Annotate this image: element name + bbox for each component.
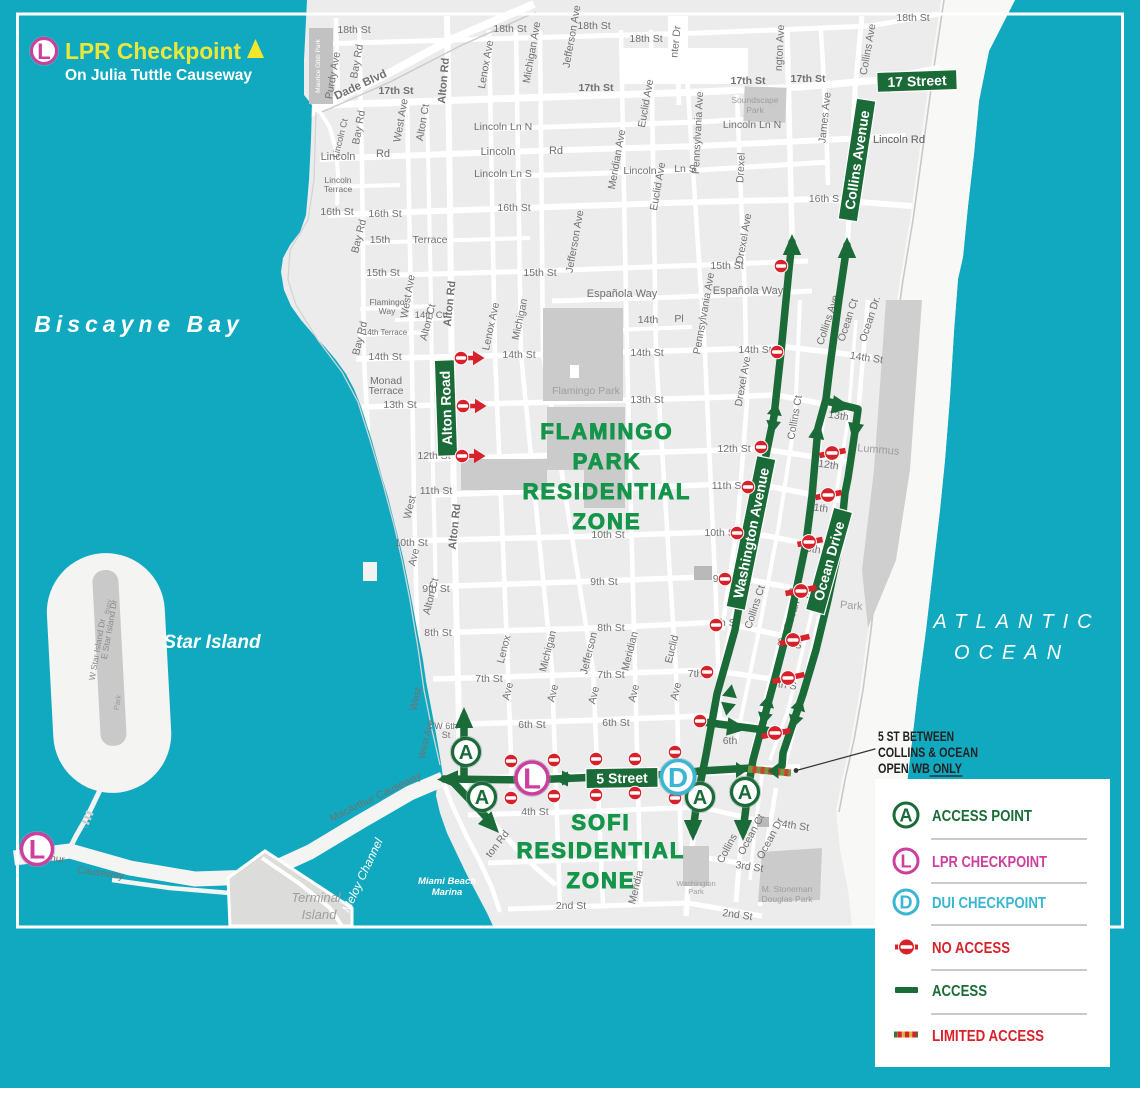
svg-text:NO ACCESS: NO ACCESS: [932, 940, 1010, 957]
svg-text:Lincoln Rd: Lincoln Rd: [873, 134, 925, 146]
svg-text:RESIDENTIAL: RESIDENTIAL: [517, 838, 686, 863]
svg-text:Lincoln Ln N: Lincoln Ln N: [474, 121, 532, 133]
svg-text:13th St: 13th St: [630, 394, 663, 406]
svg-text:9th St: 9th St: [590, 576, 618, 588]
svg-text:18th St: 18th St: [629, 33, 662, 45]
svg-text:13th St: 13th St: [383, 399, 416, 411]
svg-text:L: L: [901, 851, 912, 871]
svg-text:14th St: 14th St: [738, 344, 771, 356]
svg-text:Terrace: Terrace: [412, 234, 447, 246]
svg-text:Pl: Pl: [674, 313, 683, 325]
svg-text:5 ST BETWEEN: 5 ST BETWEEN: [878, 729, 954, 744]
svg-text:14th St: 14th St: [502, 349, 535, 361]
svg-text:Island: Island: [302, 907, 337, 922]
svg-text:6th: 6th: [723, 735, 738, 747]
svg-text:16th St: 16th St: [320, 206, 353, 218]
svg-text:LPR Checkpoint: LPR Checkpoint: [65, 38, 241, 64]
svg-text:A: A: [475, 787, 489, 809]
svg-text:Lincoln: Lincoln: [321, 151, 356, 163]
svg-text:14th St: 14th St: [368, 351, 401, 363]
svg-text:11th St: 11th St: [420, 485, 453, 497]
svg-text:ZONE: ZONE: [566, 868, 635, 893]
svg-text:17th St: 17th St: [790, 73, 826, 85]
svg-text:Terrace: Terrace: [324, 184, 353, 194]
svg-text:L: L: [37, 39, 50, 64]
svg-text:St: St: [442, 730, 451, 740]
svg-text:Ln S: Ln S: [674, 163, 696, 175]
svg-text:15th: 15th: [370, 234, 391, 246]
svg-text:Marina: Marina: [432, 887, 463, 898]
svg-text:7th St: 7th St: [475, 673, 503, 685]
svg-text:17th St: 17th St: [578, 82, 614, 94]
svg-text:14th Terrace: 14th Terrace: [363, 328, 408, 337]
svg-text:Española Way: Española Way: [587, 288, 658, 300]
svg-text:Española Way: Española Way: [713, 285, 784, 297]
svg-text:18th St: 18th St: [493, 23, 526, 35]
svg-text:Terrace: Terrace: [368, 385, 403, 397]
svg-text:DUI CHECKPOINT: DUI CHECKPOINT: [932, 895, 1046, 912]
svg-text:Rd: Rd: [549, 145, 563, 157]
svg-text:8th St: 8th St: [424, 627, 452, 639]
svg-text:L: L: [29, 835, 46, 865]
svg-text:A: A: [459, 742, 473, 764]
svg-text:FLAMINGO: FLAMINGO: [540, 419, 673, 444]
svg-text:Lincoln: Lincoln: [623, 165, 656, 177]
svg-text:15th St: 15th St: [710, 260, 743, 272]
svg-text:Park: Park: [839, 599, 863, 613]
svg-text:7th St: 7th St: [597, 669, 625, 681]
svg-text:D: D: [668, 762, 688, 793]
svg-text:17th St: 17th St: [730, 75, 766, 87]
svg-text:2nd St: 2nd St: [556, 900, 586, 912]
svg-text:ACCESS: ACCESS: [932, 983, 987, 1000]
svg-text:18th St: 18th St: [896, 12, 929, 24]
svg-text:A: A: [738, 782, 752, 804]
svg-text:Lincoln Ln S: Lincoln Ln S: [474, 168, 532, 180]
svg-text:Terminal: Terminal: [291, 890, 341, 905]
svg-text:14th Ct: 14th Ct: [415, 310, 446, 321]
svg-text:Miami Beach: Miami Beach: [418, 876, 476, 887]
svg-text:On Julia Tuttle Causeway: On Julia Tuttle Causeway: [65, 67, 252, 84]
svg-text:18th St: 18th St: [577, 20, 610, 32]
svg-text:4th St: 4th St: [521, 806, 549, 818]
svg-text:M. Stoneman: M. Stoneman: [762, 884, 813, 894]
svg-text:ACCESS POINT: ACCESS POINT: [932, 808, 1032, 825]
svg-text:14th: 14th: [638, 314, 659, 326]
svg-text:16th St: 16th St: [497, 202, 530, 214]
svg-text:18th St: 18th St: [337, 24, 370, 36]
svg-text:ZONE: ZONE: [572, 509, 641, 534]
svg-text:OCEAN: OCEAN: [954, 642, 1070, 664]
svg-text:RESIDENTIAL: RESIDENTIAL: [523, 479, 692, 504]
svg-text:Park: Park: [688, 887, 704, 896]
svg-text:9th St: 9th St: [422, 583, 450, 595]
svg-text:L: L: [523, 763, 541, 795]
svg-text:16th S: 16th S: [809, 193, 839, 205]
svg-text:A: A: [900, 805, 913, 825]
svg-text:LPR CHECKPOINT: LPR CHECKPOINT: [932, 854, 1047, 871]
svg-text:COLLINS & OCEAN: COLLINS & OCEAN: [878, 745, 978, 760]
svg-text:PARK: PARK: [573, 449, 642, 474]
svg-text:6th St: 6th St: [518, 719, 546, 731]
svg-text:A: A: [693, 787, 707, 809]
svg-text:LIMITED ACCESS: LIMITED ACCESS: [932, 1028, 1044, 1045]
svg-text:Way: Way: [379, 306, 396, 316]
svg-text:Star Island: Star Island: [163, 632, 261, 653]
svg-text:ATLANTIC: ATLANTIC: [932, 611, 1100, 633]
svg-text:SOFI: SOFI: [571, 810, 630, 835]
svg-text:10th St: 10th St: [394, 537, 427, 549]
svg-text:16th St: 16th St: [368, 208, 401, 220]
svg-text:8th St: 8th St: [597, 622, 625, 634]
svg-text:Alton Road: Alton Road: [437, 370, 456, 445]
svg-text:Douglas Park: Douglas Park: [761, 894, 813, 904]
svg-text:Maurice Gibb Park: Maurice Gibb Park: [315, 38, 322, 93]
svg-text:OPEN WB ONLY: OPEN WB ONLY: [878, 761, 962, 776]
svg-text:15th St: 15th St: [366, 267, 399, 279]
svg-text:17 Street: 17 Street: [887, 72, 947, 90]
svg-text:12th St: 12th St: [717, 443, 750, 455]
svg-text:Lincoln: Lincoln: [481, 146, 516, 158]
svg-text:ngton Ave: ngton Ave: [773, 24, 787, 71]
svg-text:Biscayne Bay: Biscayne Bay: [34, 311, 244, 337]
svg-text:5 Street: 5 Street: [596, 770, 648, 787]
svg-text:Soundscape: Soundscape: [731, 95, 779, 105]
svg-text:6th St: 6th St: [602, 717, 630, 729]
svg-text:D: D: [900, 892, 913, 912]
svg-text:Park: Park: [746, 105, 764, 115]
svg-text:Rd: Rd: [376, 148, 390, 160]
svg-text:Flamingo Park: Flamingo Park: [552, 385, 620, 397]
svg-text:14th St: 14th St: [630, 347, 663, 359]
svg-text:Drexel: Drexel: [734, 152, 748, 183]
svg-text:15th St: 15th St: [523, 267, 556, 279]
svg-text:17th St: 17th St: [378, 85, 414, 97]
svg-text:Lincoln Ln N: Lincoln Ln N: [723, 119, 781, 131]
svg-text:11th St: 11th St: [712, 480, 745, 492]
